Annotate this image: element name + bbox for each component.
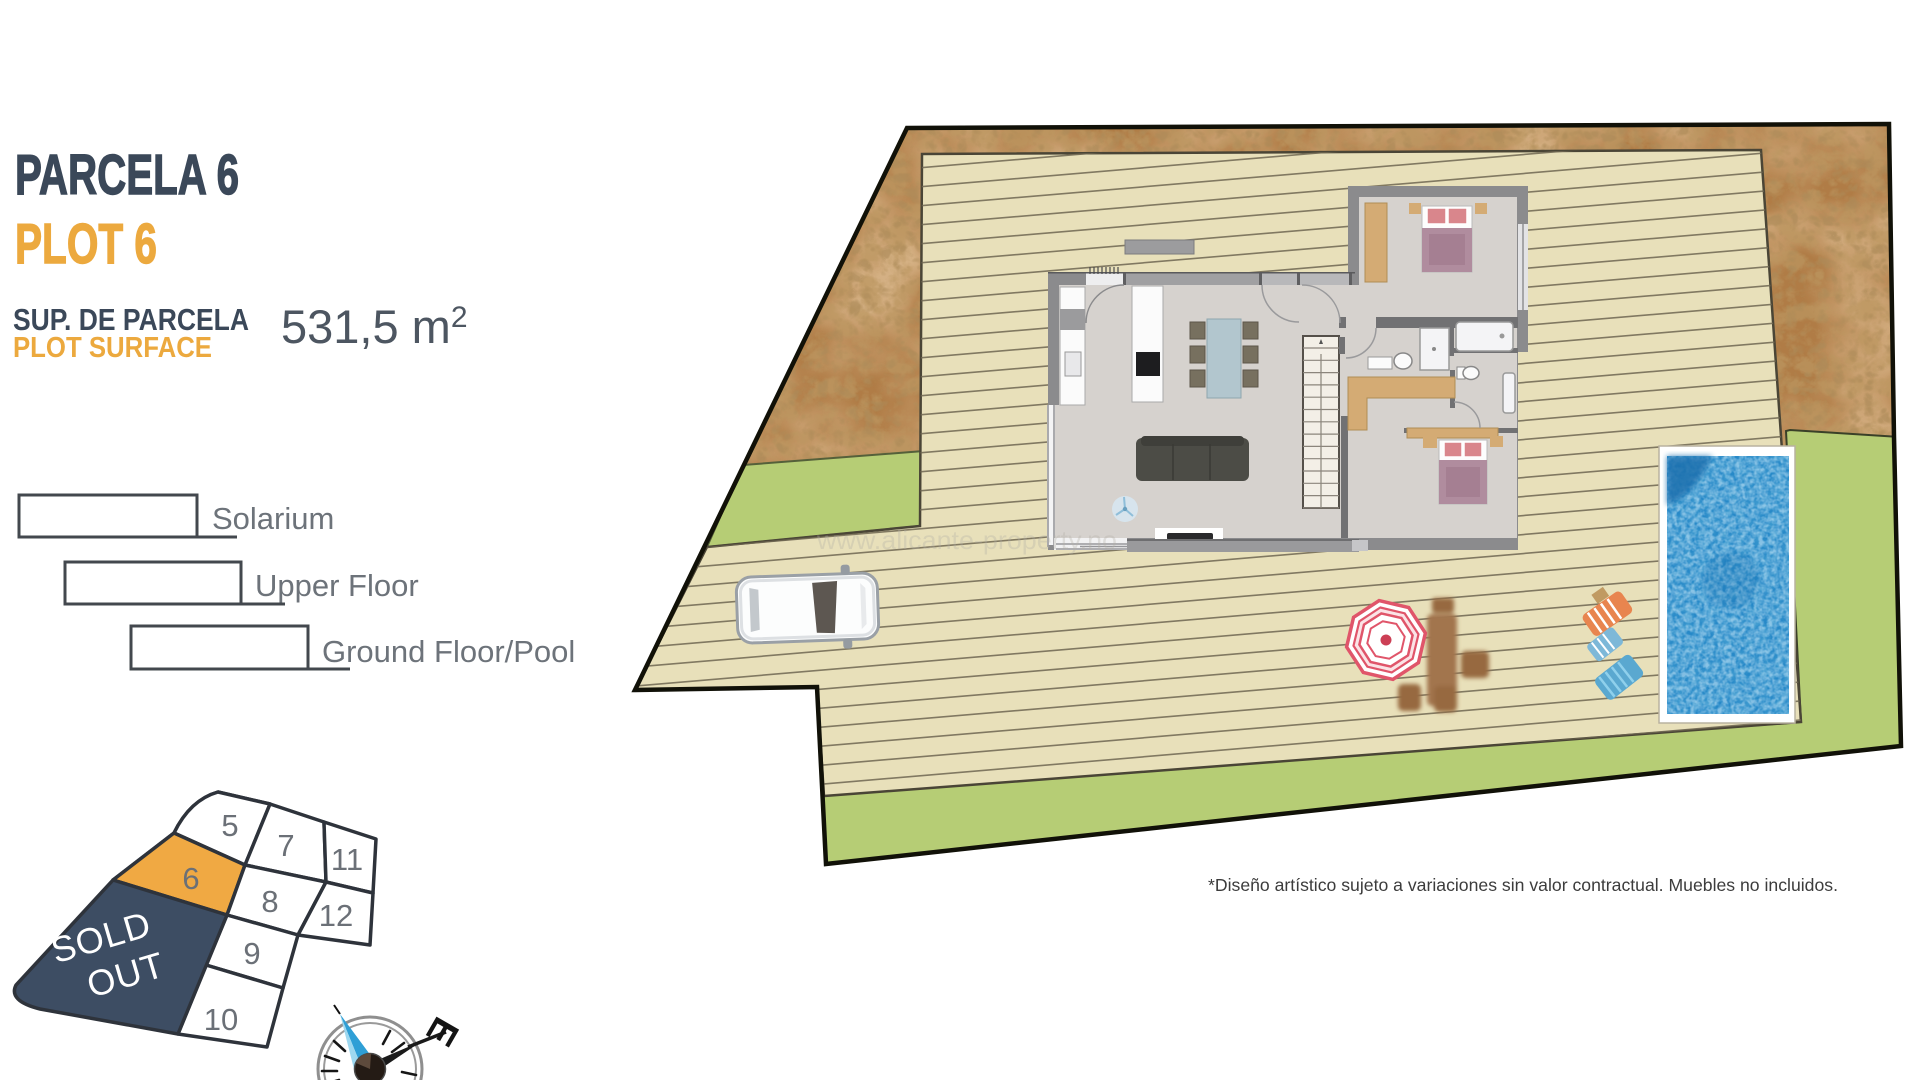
- svg-text:www.alicante-property.no: www.alicante-property.no: [816, 525, 1117, 555]
- svg-text:PARCELA 6: PARCELA 6: [15, 143, 239, 207]
- svg-text:PLOT SURFACE: PLOT SURFACE: [13, 332, 212, 364]
- svg-text:*Diseño artístico sujeto a var: *Diseño artístico sujeto a variaciones s…: [1208, 875, 1838, 895]
- svg-text:PLOT 6: PLOT 6: [15, 212, 157, 276]
- svg-text:Ground Floor/Pool: Ground Floor/Pool: [322, 634, 575, 669]
- svg-text:8: 8: [261, 884, 278, 919]
- svg-text:10: 10: [204, 1002, 238, 1037]
- svg-text:7: 7: [277, 828, 294, 863]
- svg-text:Solarium: Solarium: [212, 501, 334, 536]
- svg-text:11: 11: [331, 842, 363, 877]
- svg-text:9: 9: [243, 936, 260, 971]
- svg-text:E: E: [417, 1010, 466, 1053]
- svg-text:6: 6: [182, 861, 199, 896]
- svg-text:531,5 m2: 531,5 m2: [281, 300, 468, 353]
- svg-text:12: 12: [319, 898, 353, 933]
- svg-text:5: 5: [221, 808, 238, 843]
- svg-text:Upper Floor: Upper Floor: [255, 568, 419, 603]
